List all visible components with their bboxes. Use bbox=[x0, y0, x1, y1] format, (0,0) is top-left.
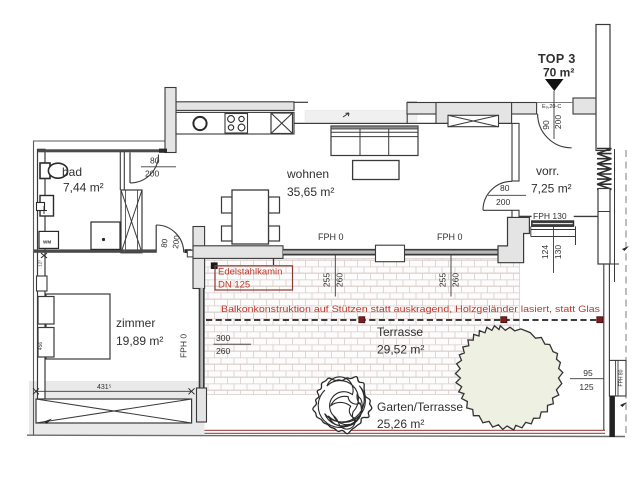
svg-text:130: 130 bbox=[553, 245, 563, 259]
svg-text:bad: bad bbox=[62, 165, 82, 179]
svg-text:200: 200 bbox=[145, 169, 159, 179]
svg-text:vorr.: vorr. bbox=[536, 164, 559, 178]
svg-text:80: 80 bbox=[160, 238, 170, 248]
svg-text:FPH 0: FPH 0 bbox=[318, 232, 344, 242]
svg-text:200: 200 bbox=[496, 197, 510, 207]
svg-text:FPH 80: FPH 80 bbox=[619, 369, 625, 386]
svg-text:DN 125: DN 125 bbox=[218, 280, 250, 291]
svg-text:300: 300 bbox=[216, 333, 230, 343]
svg-text:80: 80 bbox=[500, 183, 510, 193]
svg-text:12³: 12³ bbox=[38, 260, 43, 267]
svg-text:80: 80 bbox=[150, 156, 160, 166]
svg-text:431⁵: 431⁵ bbox=[97, 384, 112, 391]
svg-text:90: 90 bbox=[541, 120, 551, 130]
svg-text:Balkonkonstruktion auf Stützen: Balkonkonstruktion auf Stützen statt aus… bbox=[221, 304, 600, 315]
svg-text:260: 260 bbox=[216, 346, 230, 356]
svg-text:7,25 m²: 7,25 m² bbox=[531, 182, 572, 196]
svg-text:260: 260 bbox=[335, 273, 345, 287]
svg-text:125: 125 bbox=[579, 382, 593, 392]
svg-text:Terrasse: Terrasse bbox=[377, 325, 423, 339]
svg-text:70 m²: 70 m² bbox=[543, 66, 574, 80]
svg-text:zimmer: zimmer bbox=[116, 316, 155, 330]
svg-text:FPH 130: FPH 130 bbox=[533, 211, 567, 221]
svg-text:7,44 m²: 7,44 m² bbox=[63, 181, 104, 195]
svg-text:200: 200 bbox=[171, 234, 182, 249]
svg-text:FPH 0: FPH 0 bbox=[437, 232, 463, 242]
svg-text:260: 260 bbox=[450, 273, 460, 287]
svg-text:Edelstahlkamin: Edelstahlkamin bbox=[218, 267, 282, 278]
svg-text:25,26 m²: 25,26 m² bbox=[377, 417, 424, 431]
svg-text:Garten/Terrasse: Garten/Terrasse bbox=[377, 400, 463, 414]
svg-text:29,52 m²: 29,52 m² bbox=[377, 343, 424, 357]
svg-text:35,65 m²: 35,65 m² bbox=[287, 185, 334, 199]
svg-text:456: 456 bbox=[38, 342, 44, 351]
svg-text:19,89 m²: 19,89 m² bbox=[116, 334, 163, 348]
svg-text:wohnen: wohnen bbox=[286, 167, 329, 181]
svg-text:TOP 3: TOP 3 bbox=[538, 52, 576, 66]
svg-text:FPH 0: FPH 0 bbox=[179, 334, 189, 358]
svg-text:WM: WM bbox=[43, 240, 51, 245]
svg-text:255: 255 bbox=[437, 273, 447, 287]
svg-text:200: 200 bbox=[553, 115, 563, 129]
svg-text:255: 255 bbox=[322, 273, 332, 287]
svg-text:95: 95 bbox=[583, 368, 593, 378]
svg-text:124: 124 bbox=[540, 245, 550, 259]
svg-text:E₉,20-C: E₉,20-C bbox=[542, 104, 561, 110]
